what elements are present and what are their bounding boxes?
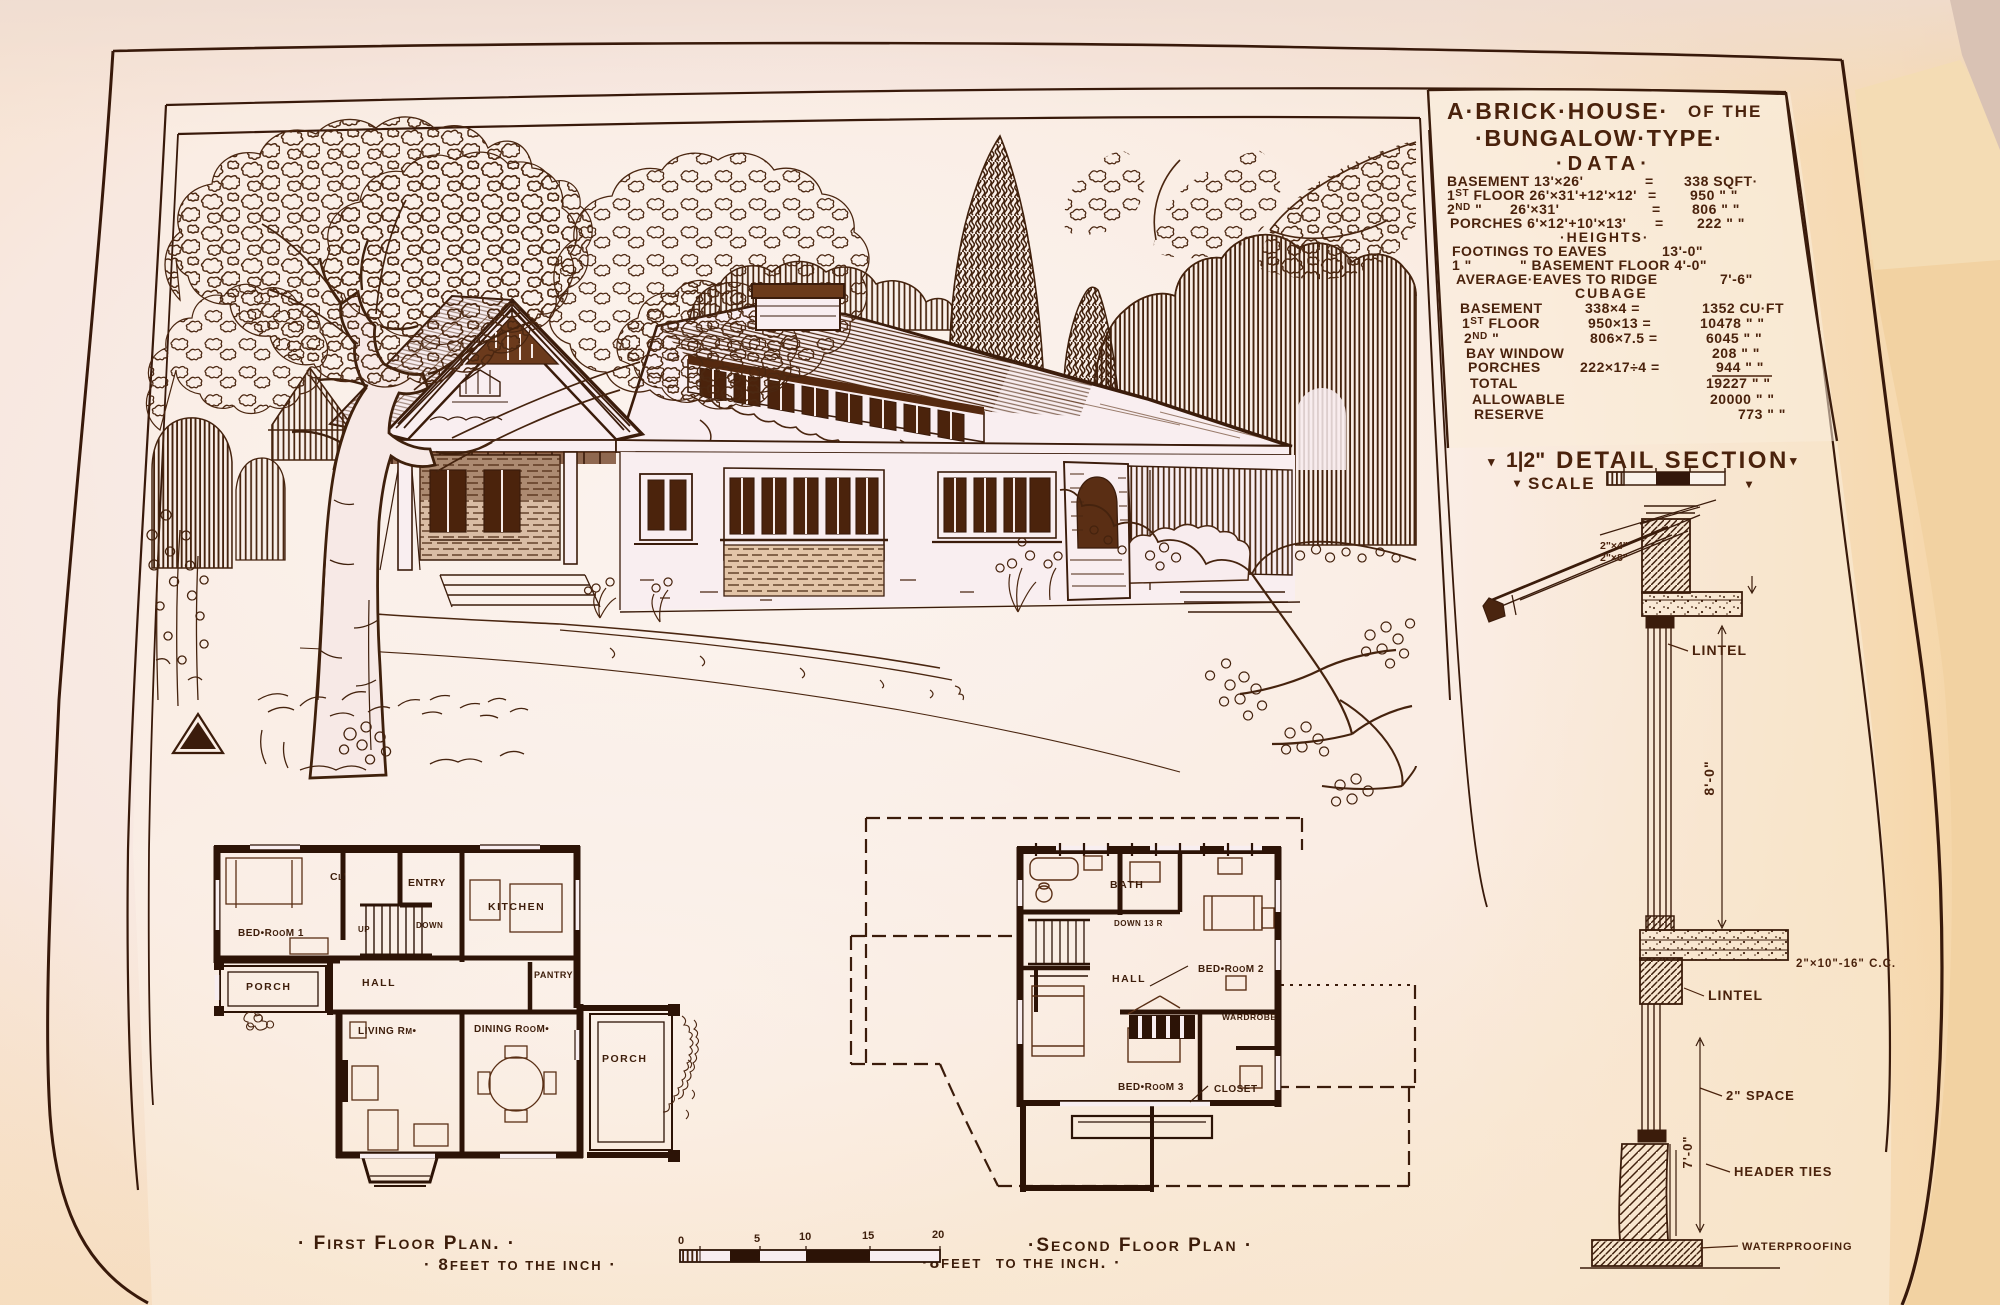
svg-text:222 " ": 222 " " [1697, 215, 1745, 231]
svg-text:10: 10 [799, 1231, 811, 1243]
svg-text:950×13 =: 950×13 = [1588, 315, 1651, 331]
svg-text:▾: ▾ [1745, 477, 1753, 491]
svg-text:806×7.5 =: 806×7.5 = [1590, 330, 1658, 346]
svg-text:DOWN 13 R: DOWN 13 R [1114, 919, 1163, 928]
svg-text:7'-0": 7'-0" [1680, 1135, 1695, 1168]
svg-text:·BUNGALOW·TYPE·: ·BUNGALOW·TYPE· [1475, 125, 1723, 151]
svg-text:19227 " ": 19227 " " [1706, 375, 1771, 391]
svg-text:PORCH: PORCH [246, 981, 291, 993]
svg-text:BED•ROOM 1: BED•ROOM 1 [238, 928, 304, 939]
svg-text:RESERVE: RESERVE [1474, 406, 1544, 422]
svg-text:SCALE: SCALE [1528, 474, 1596, 493]
svg-text:DETAIL SECTION: DETAIL SECTION [1556, 447, 1789, 474]
svg-text:2" SPACE: 2" SPACE [1726, 1088, 1795, 1103]
svg-text:20: 20 [932, 1229, 944, 1241]
svg-text:ALLOWABLE: ALLOWABLE [1472, 391, 1565, 407]
svg-text:HEADER TIES: HEADER TIES [1734, 1164, 1832, 1179]
svg-text:·SECOND FLOOR PLAN ·: ·SECOND FLOOR PLAN · [1028, 1235, 1253, 1256]
svg-text:PANTRY: PANTRY [534, 970, 573, 980]
svg-text:·8FEET TO THE INCH. ·: ·8FEET TO THE INCH. · [922, 1253, 1122, 1272]
svg-text:▾: ▾ [1487, 454, 1495, 469]
svg-text:▾: ▾ [1513, 476, 1521, 490]
svg-text:CLOSET: CLOSET [1214, 1084, 1258, 1095]
svg-text:1|2": 1|2" [1506, 449, 1545, 472]
svg-text:·DATA·: ·DATA· [1556, 153, 1652, 175]
svg-text:BASEMENT: BASEMENT [1460, 300, 1543, 316]
svg-text:1352 CU·FT: 1352 CU·FT [1702, 300, 1784, 316]
svg-text:2"×8": 2"×8" [1600, 552, 1628, 564]
svg-text:8'-0": 8'-0" [1701, 760, 1717, 795]
svg-text:BED•ROOM 2: BED•ROOM 2 [1198, 964, 1264, 975]
svg-text:BATH: BATH [1110, 879, 1144, 891]
svg-text:WATERPROOFING: WATERPROOFING [1742, 1241, 1853, 1253]
svg-text:=: = [1655, 215, 1664, 231]
svg-text:LINTEL: LINTEL [1708, 987, 1763, 1003]
svg-text:222×17÷4 =: 222×17÷4 = [1580, 359, 1660, 375]
svg-text:UP: UP [358, 925, 370, 934]
svg-text:CUBAGE: CUBAGE [1575, 285, 1648, 301]
svg-text:WARDROBE: WARDROBE [1222, 1012, 1277, 1022]
svg-text:7'-6": 7'-6" [1720, 271, 1753, 287]
svg-text:DINING ROOM•: DINING ROOM• [474, 1024, 549, 1035]
svg-text:▾: ▾ [1789, 453, 1797, 468]
svg-text:6045 " ": 6045 " " [1706, 330, 1762, 346]
svg-text:· FIRST FLOOR PLAN. ·: · FIRST FLOOR PLAN. · [298, 1233, 516, 1254]
svg-text:15: 15 [862, 1230, 874, 1242]
svg-text:OF THE: OF THE [1688, 102, 1762, 121]
svg-text:0: 0 [678, 1235, 684, 1247]
svg-text:KITCHEN: KITCHEN [488, 901, 545, 913]
svg-text:BED•ROOM 3: BED•ROOM 3 [1118, 1082, 1184, 1093]
svg-text:LINTEL: LINTEL [1692, 642, 1747, 658]
svg-text:20000 " ": 20000 " " [1710, 391, 1775, 407]
svg-text:338×4 =: 338×4 = [1585, 300, 1640, 316]
svg-text:TOTAL: TOTAL [1470, 375, 1518, 391]
svg-text:2"×4": 2"×4" [1600, 540, 1628, 552]
svg-text:10478 " ": 10478 " " [1700, 315, 1765, 331]
svg-text:PORCHES: PORCHES [1468, 359, 1541, 375]
svg-text:HALL: HALL [362, 977, 396, 989]
svg-text:PORCH: PORCH [602, 1053, 647, 1065]
svg-text:LIVING RM•: LIVING RM• [358, 1026, 417, 1037]
svg-text:773 " ": 773 " " [1738, 406, 1786, 422]
svg-text:5: 5 [754, 1233, 760, 1245]
svg-text:A·BRICK·HOUSE·: A·BRICK·HOUSE· [1447, 98, 1669, 124]
svg-text:944 " ": 944 " " [1716, 359, 1764, 375]
svg-text:ENTRY: ENTRY [408, 877, 446, 889]
svg-text:CL': CL' [330, 871, 346, 883]
svg-text:· 8FEET TO THE INCH ·: · 8FEET TO THE INCH · [424, 1255, 617, 1274]
svg-text:2"×10"-16" C.C.: 2"×10"-16" C.C. [1796, 958, 1896, 970]
svg-text:HALL: HALL [1112, 973, 1146, 985]
svg-text:DOWN: DOWN [416, 921, 443, 930]
